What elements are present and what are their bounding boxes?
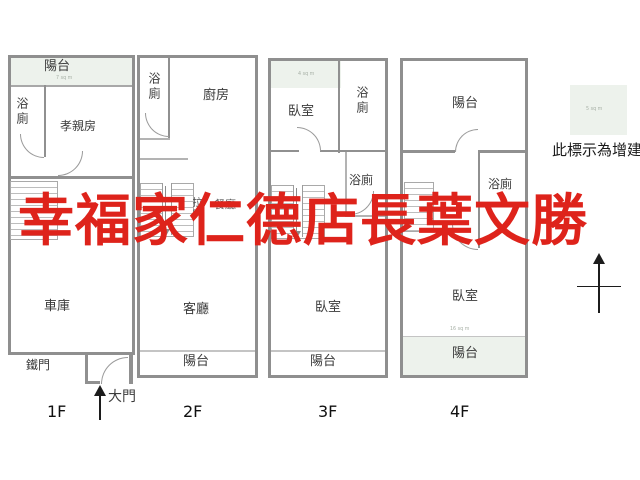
- area-text-4f-balcony: 16 sq m: [450, 326, 469, 332]
- wall: [11, 176, 132, 179]
- floor-tag-4f: 4F: [450, 402, 469, 421]
- floor-tag-2f: 2F: [183, 402, 202, 421]
- wall: [44, 85, 46, 157]
- wall: [338, 61, 340, 153]
- room-label-bath-1f: 浴廁: [14, 97, 31, 127]
- room-label-bath-mid-3f: 浴廁: [349, 174, 373, 188]
- wall: [129, 355, 133, 384]
- label-iron-door: 鐵門: [26, 359, 50, 373]
- room-label-living-room: 客廳: [183, 303, 209, 318]
- room-label-garage: 車庫: [44, 300, 70, 315]
- door-arc-main-entrance: [101, 357, 128, 384]
- room-label-bedroom-rear-3f: 臥室: [315, 301, 341, 316]
- room-label-bedroom-4f: 臥室: [452, 290, 478, 305]
- wall: [478, 150, 525, 153]
- room-label-balcony-rear-4f: 陽台: [452, 347, 478, 362]
- legend-note: 此標示為增建: [552, 142, 640, 159]
- wall: [85, 355, 88, 384]
- balcony-line: [140, 350, 255, 352]
- wall: [320, 150, 388, 152]
- wall: [140, 138, 170, 140]
- room-label-bath-2f: 浴廁: [146, 72, 163, 102]
- floor-tag-3f: 3F: [318, 402, 337, 421]
- floor-1f-front-balcony-zone: [11, 58, 132, 87]
- wall: [403, 150, 455, 153]
- area-text-3f-addition: 4 sq m: [298, 71, 314, 77]
- room-label-balcony-2f: 陽台: [183, 355, 209, 370]
- room-label-kitchen: 廚房: [203, 89, 229, 104]
- floor-plan-canvas: 陽台 7 sq m 浴廁 孝親房 車庫 鐵門 大門 1F 浴廁 廚房 拉門 餐廳…: [0, 0, 640, 480]
- room-label-balcony-1f: 陽台: [44, 60, 70, 75]
- wall: [140, 158, 188, 160]
- area-text-1f-balcony: 7 sq m: [56, 75, 72, 81]
- wall: [271, 150, 299, 152]
- legend-swatch-area-text: 5 sq m: [586, 106, 602, 112]
- agent-watermark: 幸福家仁德店長葉文勝: [18, 191, 588, 253]
- room-label-balcony-front-4f: 陽台: [452, 97, 478, 112]
- wall: [85, 381, 100, 384]
- room-label-elder-room: 孝親房: [60, 120, 96, 134]
- label-main-door: 大門: [108, 389, 136, 405]
- floor-tag-1f: 1F: [47, 402, 66, 421]
- room-label-bedroom-front-3f: 臥室: [288, 105, 314, 120]
- room-label-bath-upper-3f: 浴廁: [354, 86, 371, 116]
- room-label-balcony-3f: 陽台: [310, 355, 336, 370]
- balcony-line: [271, 350, 385, 352]
